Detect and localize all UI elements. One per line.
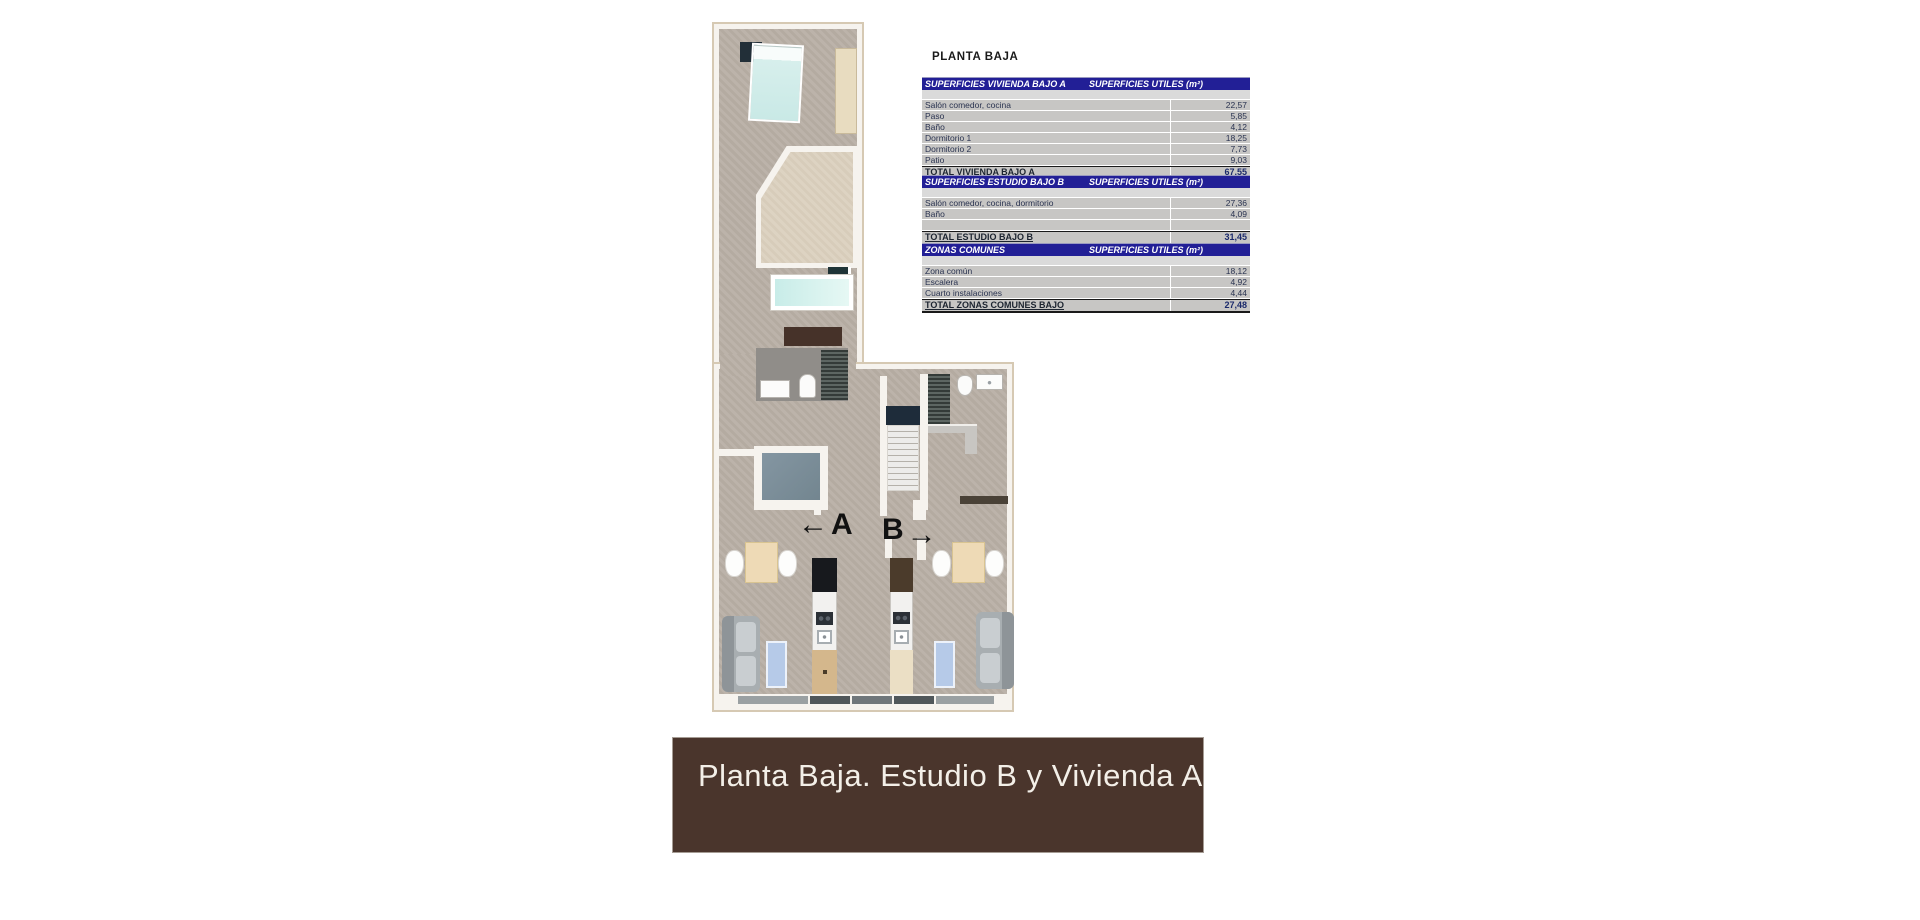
room-area: 18,12 <box>1171 266 1250 276</box>
table-header-left: SUPERFICIES ESTUDIO BAJO B <box>925 176 1064 188</box>
table-row <box>922 220 1250 231</box>
table-body: Zona común18,12Escalera4,92Cuarto instal… <box>922 266 1250 299</box>
room-name: Zona común <box>922 266 1171 276</box>
bathroom-b-toilet <box>957 375 973 396</box>
room-area: 9,03 <box>1171 155 1250 165</box>
room-name: Dormitorio 2 <box>922 144 1171 154</box>
rug-a <box>766 641 787 688</box>
table-body: Salón comedor, cocina, dormitorio27,36Ba… <box>922 198 1250 231</box>
unit-b-label: B → <box>882 510 937 550</box>
table-body: Salón comedor, cocina22,57Paso5,85Baño4,… <box>922 100 1250 166</box>
chair <box>985 550 1004 577</box>
table-header-right: SUPERFICIES UTILES (m²) <box>1089 176 1203 188</box>
total-label: TOTAL ZONAS COMUNES BAJO <box>922 300 1171 311</box>
room-area: 27,36 <box>1171 198 1250 208</box>
table-spacer <box>922 90 1250 100</box>
room-name: Cuarto instalaciones <box>922 288 1171 298</box>
arrow-right-icon: → <box>907 520 937 550</box>
kitchen-island-b <box>890 558 913 698</box>
total-value: 27,48 <box>1171 300 1250 311</box>
table-spacer <box>922 256 1250 266</box>
table-header: SUPERFICIES ESTUDIO BAJO B SUPERFICIES U… <box>922 175 1250 188</box>
room-name: Salón comedor, cocina, dormitorio <box>922 198 1171 208</box>
island-cabinet <box>890 650 913 698</box>
sofa-b <box>976 612 1014 689</box>
room-name: Escalera <box>922 277 1171 287</box>
room-area: 22,57 <box>1171 100 1250 110</box>
pool <box>770 274 854 311</box>
kitchen-sink <box>817 630 832 644</box>
table-row: Dormitorio 118,25 <box>922 133 1250 144</box>
window <box>738 696 808 704</box>
total-value: 31,45 <box>1171 232 1250 243</box>
storage-cabinet <box>784 327 842 346</box>
bathroom-a-toilet <box>799 374 816 398</box>
dining-table-a <box>745 542 778 583</box>
chair <box>932 550 951 577</box>
table-row: Baño4,12 <box>922 122 1250 133</box>
room-name: Dormitorio 1 <box>922 133 1171 143</box>
entrance-door <box>810 696 850 704</box>
kitchen-sink <box>894 630 909 644</box>
table-row: Escalera4,92 <box>922 277 1250 288</box>
fridge <box>812 558 837 592</box>
unit-b-letter: B <box>882 515 904 545</box>
table-row: Dormitorio 27,73 <box>922 144 1250 155</box>
table-header: ZONAS COMUNES SUPERFICIES UTILES (m²) <box>922 243 1250 256</box>
cooktop <box>893 612 910 624</box>
room-area: 4,09 <box>1171 209 1250 219</box>
sofa-cushion <box>736 656 756 686</box>
bed <box>748 43 804 124</box>
table-header-right: SUPERFICIES UTILES (m²) <box>1089 244 1203 256</box>
chair <box>778 550 797 577</box>
table-spacer <box>922 188 1250 198</box>
bathroom-b-partition <box>965 433 977 454</box>
cabinet-handle <box>823 670 827 674</box>
cooktop <box>816 612 833 625</box>
arrow-left-icon: ← <box>798 510 828 540</box>
table-row: Salón comedor, cocina, dormitorio27,36 <box>922 198 1250 209</box>
sofa-cushion <box>736 622 756 652</box>
sofa-cushion <box>980 653 1000 683</box>
unit-a-label: ← A <box>798 510 853 540</box>
room-name: Paso <box>922 111 1171 121</box>
table-header: SUPERFICIES VIVIENDA BAJO A SUPERFICIES … <box>922 77 1250 90</box>
table-total-row: TOTAL ZONAS COMUNES BAJO 27,48 <box>922 299 1250 313</box>
pool-water <box>775 279 849 306</box>
surface-table-zonas-comunes: ZONAS COMUNES SUPERFICIES UTILES (m²) Zo… <box>922 243 1250 313</box>
storefront-wall <box>718 694 1008 706</box>
stair-wall <box>920 374 928 510</box>
table-header-left: ZONAS COMUNES <box>925 244 1005 256</box>
table-row: Salón comedor, cocina22,57 <box>922 100 1250 111</box>
rug-b <box>934 641 955 688</box>
caption-banner: Planta Baja. Estudio B y Vivienda A <box>672 737 1204 853</box>
table-row: Paso5,85 <box>922 111 1250 122</box>
room-area: 7,73 <box>1171 144 1250 154</box>
table-row: Cuarto instalaciones4,44 <box>922 288 1250 299</box>
surface-table-estudio-b: SUPERFICIES ESTUDIO BAJO B SUPERFICIES U… <box>922 175 1250 245</box>
table-row: Patio9,03 <box>922 155 1250 166</box>
wardrobe <box>835 48 857 134</box>
room-area: 18,25 <box>1171 133 1250 143</box>
room-area: 4,12 <box>1171 122 1250 132</box>
sofa-a <box>722 616 760 692</box>
room-area: 4,92 <box>1171 277 1250 287</box>
sofa-back <box>1002 612 1014 689</box>
window <box>852 696 892 704</box>
dining-table-b <box>952 542 985 583</box>
total-label: TOTAL ESTUDIO BAJO B <box>922 232 1171 243</box>
room-area: 4,44 <box>1171 288 1250 298</box>
surface-table-vivienda-a: SUPERFICIES VIVIENDA BAJO A SUPERFICIES … <box>922 77 1250 180</box>
room-name: Salón comedor, cocina <box>922 100 1171 110</box>
sofa-cushion <box>980 618 1000 648</box>
staircase-upper <box>928 374 950 425</box>
unit-a-letter: A <box>831 510 853 540</box>
staircase <box>887 425 919 491</box>
room-name: Baño <box>922 122 1171 132</box>
fridge <box>890 558 913 592</box>
bathroom-a-sink <box>760 380 790 398</box>
table-row: Zona común18,12 <box>922 266 1250 277</box>
window <box>936 696 994 704</box>
sofa-back <box>722 616 734 692</box>
table-row: Baño4,09 <box>922 209 1250 220</box>
bathroom-a-shower <box>821 350 848 400</box>
utility-room-floor <box>762 453 820 503</box>
caption-text: Planta Baja. Estudio B y Vivienda A <box>698 758 1203 794</box>
table-header-right: SUPERFICIES UTILES (m²) <box>1089 78 1203 90</box>
stair-landing <box>886 406 920 425</box>
kitchen-b-counter <box>960 496 1008 504</box>
page-title: PLANTA BAJA <box>932 51 1018 63</box>
kitchen-island-a <box>812 558 837 698</box>
room-name <box>922 220 1171 230</box>
stair-wall <box>880 376 887 516</box>
bathroom-b-partition <box>928 424 977 433</box>
table-header-left: SUPERFICIES VIVIENDA BAJO A <box>925 78 1066 90</box>
island-cabinet <box>812 650 837 698</box>
room-name: Patio <box>922 155 1171 165</box>
room-area <box>1171 220 1250 230</box>
entrance-door <box>894 696 934 704</box>
chair <box>725 550 744 577</box>
room-area: 5,85 <box>1171 111 1250 121</box>
room-name: Baño <box>922 209 1171 219</box>
bathroom-b-sink <box>976 374 1003 390</box>
kitchen-a-wall <box>758 500 822 507</box>
